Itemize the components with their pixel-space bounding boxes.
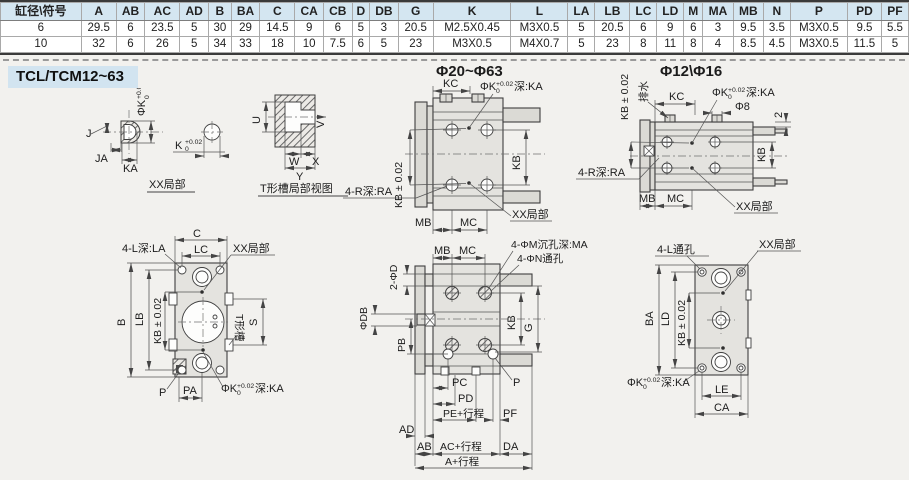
table-cell: 5	[180, 21, 209, 37]
table-cell: 29	[231, 21, 260, 37]
dim-label-pf: PF	[503, 408, 517, 420]
dim-label-ja: JA	[95, 153, 109, 165]
column-header-3: AC	[145, 3, 180, 21]
dim-label-mc: MC	[459, 245, 476, 257]
dimension-table-wrap: 缸径\符号AABACADBBACCACBDDBGKLLALBLCLDMMAMBN…	[0, 0, 909, 55]
dim-label-b: B	[116, 319, 128, 326]
table-cell: 9.5	[847, 21, 881, 37]
ref-label-xx: XX局部	[736, 199, 773, 213]
table-cell: 26	[145, 37, 180, 53]
dim-label-y: Y	[296, 171, 304, 183]
dim-label-u: U	[252, 116, 263, 124]
table-cell: 23.5	[145, 21, 180, 37]
section-title: TCL/TCM12~63	[8, 66, 138, 88]
column-header-2: AB	[116, 3, 145, 21]
note-label-drain: 排水	[637, 81, 650, 102]
dim-label-depth-ka: 深:KA	[661, 376, 690, 389]
note-label-tslot: T形槽	[233, 314, 245, 342]
dim-label-kb: KB	[506, 315, 518, 330]
tolerance-upper: +0.02	[728, 87, 745, 94]
column-header-9: CB	[323, 3, 352, 21]
column-header-1: A	[81, 3, 116, 21]
table-cell: 11	[657, 37, 684, 53]
dim-label-pa: PA	[183, 385, 198, 397]
column-header-23: P	[790, 3, 847, 21]
table-cell: 33	[231, 37, 260, 53]
column-header-24: PD	[847, 3, 881, 21]
dim-label-two-d: 2-ΦD	[388, 264, 400, 290]
view-dome-detail: J JA KA ΦK +0.02 0 K +0.02 0 XX局部	[75, 88, 270, 228]
column-header-13: K	[433, 3, 511, 21]
table-cell: 23	[398, 37, 433, 53]
table-cell: 5	[881, 37, 908, 53]
table-cell: 20.5	[595, 21, 630, 37]
table-cell: 23	[595, 37, 630, 53]
column-header-17: LC	[630, 3, 657, 21]
dim-label-db: ΦDB	[358, 307, 370, 330]
note-label-n-holes: 4-ΦN通孔	[517, 252, 564, 265]
dim-label-two: 2	[773, 112, 785, 118]
column-header-25: PF	[881, 3, 908, 21]
table-cell: M3X0.5	[790, 37, 847, 53]
tolerance-lower: 0	[496, 88, 500, 95]
dim-label-phik-group: ΦK +0.02 0	[136, 88, 151, 116]
dim-label-kb-tol: KB ± 0.02	[676, 300, 688, 346]
table-row: 10326265343318107.56523M3X0.5M4X0.752381…	[1, 37, 909, 53]
column-header-5: B	[208, 3, 231, 21]
tolerance-lower: 0	[237, 390, 241, 397]
dim-label-ab: AB	[417, 441, 432, 453]
tolerance-upper: +0.02	[136, 88, 143, 99]
table-cell: 4.5	[763, 37, 790, 53]
table-cell: 9	[657, 21, 684, 37]
dim-label-da: DA	[503, 441, 519, 453]
table-cell: 30	[208, 21, 231, 37]
table-cell: 34	[208, 37, 231, 53]
dim-label-mc: MC	[667, 193, 684, 205]
column-header-4: AD	[180, 3, 209, 21]
column-header-11: DB	[370, 3, 399, 21]
view-title-small-bore: Φ12\Φ16	[660, 63, 722, 80]
dim-label-kc: KC	[443, 78, 458, 90]
tolerance-upper: +0.02	[496, 81, 513, 88]
dim-label-ac: AC+行程	[440, 440, 482, 453]
tolerance-lower: 0	[643, 384, 647, 391]
dim-label-ca: CA	[714, 402, 730, 414]
dim-label-ad: AD	[399, 424, 414, 436]
table-row: 629.5623.55302914.5965320.5M2.5X0.45M3X0…	[1, 21, 909, 37]
view-section: MB MC 4-ΦM沉孔深:MA 4-ΦN通孔 2-ΦD ΦDB PB KB G…	[345, 226, 637, 478]
table-cell: 3	[703, 21, 733, 37]
column-header-16: LB	[595, 3, 630, 21]
column-header-19: M	[684, 3, 703, 21]
dimension-table: 缸径\符号AABACADBBACCACBDDBGKLLALBLCLDMMAMBN…	[0, 2, 909, 53]
table-cell: 5	[180, 37, 209, 53]
table-cell: 10	[295, 37, 324, 53]
dim-label-w: W	[289, 156, 300, 168]
dim-label-pd: PD	[458, 393, 473, 405]
table-cell: 5	[352, 21, 370, 37]
dim-label-r-depth: 4-R深:RA	[578, 166, 626, 179]
table-cell: 8	[684, 37, 703, 53]
dim-label-depth-ka: 深:KA	[746, 86, 775, 99]
dim-label-ka: KA	[123, 163, 138, 175]
dim-label-kb-tol: KB ± 0.02	[152, 298, 164, 344]
table-cell: 6	[116, 37, 145, 53]
dim-label-ld: LD	[660, 312, 672, 326]
dim-label-p: P	[513, 377, 520, 389]
table-cell: 6	[352, 37, 370, 53]
table-cell: 20.5	[398, 21, 433, 37]
column-header-12: G	[398, 3, 433, 21]
dim-label-g: G	[523, 323, 535, 332]
column-header-22: N	[763, 3, 790, 21]
dim-label-kb: KB	[511, 155, 523, 170]
dim-label-phik: ΦK	[627, 377, 644, 389]
column-header-18: LD	[657, 3, 684, 21]
dim-label-mb: MB	[434, 245, 451, 257]
view-side-large-bore: Φ20~Φ63 KC ΦK +0.02 0 深:KA KB ± 0.02 KB …	[330, 58, 570, 243]
dim-label-phik: ΦK	[712, 87, 729, 99]
table-cell: 6	[116, 21, 145, 37]
table-cell: 6	[630, 21, 657, 37]
dim-label-s: S	[248, 319, 260, 326]
dim-label-a: A+行程	[445, 455, 480, 468]
dim-label-pb: PB	[396, 338, 408, 352]
view-front: 4-L深:LA C LC XX局部 B LB KB ± 0.02 S T形槽 P…	[105, 226, 310, 431]
column-header-20: MA	[703, 3, 733, 21]
dim-label-phik: ΦK	[136, 99, 148, 116]
dim-label-phi8: Φ8	[735, 101, 750, 113]
tolerance-upper: +0.02	[185, 139, 202, 146]
table-cell: 5	[568, 21, 595, 37]
tolerance-lower: 0	[144, 95, 151, 99]
column-header-15: LA	[568, 3, 595, 21]
table-cell: 6	[1, 21, 82, 37]
table-cell: 5.5	[881, 21, 908, 37]
dim-label-depth-ka: 深:KA	[255, 382, 284, 395]
view-side-small-bore: Φ12\Φ16 KB ± 0.02 排水 KC ΦK +0.02 0 深:KA …	[575, 58, 884, 248]
table-cell: 6	[323, 21, 352, 37]
column-header-6: BA	[231, 3, 260, 21]
dim-label-lc: LC	[194, 244, 208, 256]
table-cell: 8	[630, 37, 657, 53]
dim-label-lb: LB	[134, 313, 146, 326]
table-cell: 3	[370, 21, 399, 37]
column-header-14: L	[511, 3, 568, 21]
table-cell: 7.5	[323, 37, 352, 53]
dim-label-r-depth: 4-R深:RA	[345, 185, 393, 198]
tolerance-lower: 0	[185, 146, 189, 153]
dim-label-l-depth: 4-L深:LA	[122, 242, 166, 255]
table-header-row: 缸径\符号AABACADBBACCACBDDBGKLLALBLCLDMMAMBN…	[1, 3, 909, 21]
view-caption-dome: XX局部	[149, 177, 186, 191]
table-cell: 32	[81, 37, 116, 53]
table-cell: 5	[370, 37, 399, 53]
dim-label-kb: KB	[756, 147, 768, 162]
catalog-page: 缸径\符号AABACADBBACCACBDDBGKLLALBLCLDMMAMBN…	[0, 0, 909, 480]
table-cell: 9.5	[733, 21, 763, 37]
dim-label-p: P	[159, 387, 166, 399]
note-label-l-holes: 4-L通孔	[657, 243, 695, 256]
dim-label-ba: BA	[644, 311, 656, 326]
view-caption-tslot: T形槽局部视图	[260, 181, 333, 195]
table-cell: 4	[703, 37, 733, 53]
table-cell: M3X0.5	[433, 37, 511, 53]
table-cell: 3.5	[763, 21, 790, 37]
column-header-8: CA	[295, 3, 324, 21]
column-header-21: MB	[733, 3, 763, 21]
dim-label-kc: KC	[669, 91, 684, 103]
table-cell: 11.5	[847, 37, 881, 53]
table-cell: 14.5	[260, 21, 295, 37]
note-label-m-holes: 4-ΦM沉孔深:MA	[511, 238, 588, 251]
dim-label-c: C	[193, 228, 201, 240]
dim-label-kb-tol: KB ± 0.02	[619, 74, 631, 120]
dim-label-depth-ka: 深:KA	[514, 80, 543, 93]
dim-label-k: K	[175, 140, 183, 152]
table-cell: 18	[260, 37, 295, 53]
column-header-0: 缸径\符号	[1, 3, 82, 21]
ref-label-xx: XX局部	[233, 241, 270, 255]
view-rear: 4-L通孔 XX局部 BA LD KB ± 0.02 ΦK +0.02 0 深:…	[625, 226, 885, 436]
tolerance-upper: +0.02	[643, 377, 660, 384]
table-cell: 9	[295, 21, 324, 37]
ref-label-xx: XX局部	[512, 207, 549, 221]
table-cell: 10	[1, 37, 82, 53]
tolerance-upper: +0.02	[237, 383, 254, 390]
dim-label-v: V	[315, 120, 327, 128]
dim-label-pe: PE+行程	[443, 407, 485, 420]
dim-label-phik: ΦK	[480, 81, 497, 93]
dim-label-pc: PC	[452, 377, 467, 389]
column-header-10: D	[352, 3, 370, 21]
table-cell: 8.5	[733, 37, 763, 53]
column-header-7: C	[260, 3, 295, 21]
table-cell: M2.5X0.45	[433, 21, 511, 37]
table-cell: 6	[684, 21, 703, 37]
ref-label-xx: XX局部	[759, 237, 796, 251]
tolerance-lower: 0	[728, 94, 732, 101]
dim-label-mb: MB	[639, 193, 656, 205]
dim-label-phik: ΦK	[221, 383, 238, 395]
table-cell: M3X0.5	[790, 21, 847, 37]
dim-label-x: X	[312, 156, 320, 168]
table-cell: 29.5	[81, 21, 116, 37]
table-cell: M4X0.7	[511, 37, 568, 53]
dim-label-j: J	[86, 128, 92, 140]
dim-label-kb-tol: KB ± 0.02	[393, 162, 405, 208]
table-cell: M3X0.5	[511, 21, 568, 37]
table-cell: 5	[568, 37, 595, 53]
dim-label-le: LE	[715, 384, 728, 396]
